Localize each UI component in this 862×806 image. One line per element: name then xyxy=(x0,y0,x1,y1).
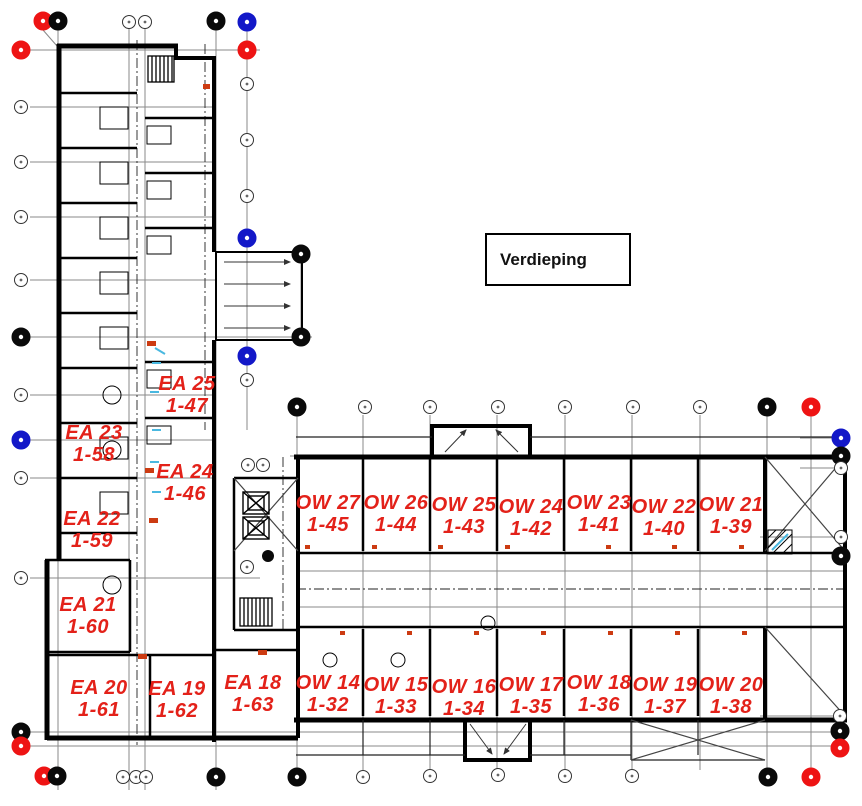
unit-name: EA 22 xyxy=(63,508,120,530)
unit-label-ea-21: EA 211-60 xyxy=(59,594,116,638)
unit-label-ow-21: OW 211-39 xyxy=(699,494,764,538)
grid-bubble-center xyxy=(839,715,842,718)
unit-number: 1-62 xyxy=(148,700,205,722)
unit-name: OW 27 xyxy=(296,492,361,514)
grid-bubble-center xyxy=(19,744,23,748)
grid-bubble-center xyxy=(362,776,365,779)
grid-bubble-center xyxy=(429,775,432,778)
grid-bubble-center xyxy=(19,48,23,52)
grid-bubble-center xyxy=(20,394,23,397)
unit-number: 1-32 xyxy=(296,694,361,716)
unit-number: 1-47 xyxy=(158,395,215,417)
grid-bubble-center xyxy=(295,775,299,779)
grid-bubble-center xyxy=(245,48,249,52)
unit-label-ow-17: OW 171-35 xyxy=(499,674,564,718)
grid-bubble-center xyxy=(19,335,23,339)
grid-bubble-center xyxy=(214,775,218,779)
unit-name: OW 20 xyxy=(699,674,764,696)
grid-bubble-center xyxy=(631,775,634,778)
unit-number: 1-38 xyxy=(699,696,764,718)
unit-number: 1-59 xyxy=(63,530,120,552)
grid-bubble-center xyxy=(214,19,218,23)
unit-name: EA 24 xyxy=(156,461,213,483)
unit-label-ea-19: EA 191-62 xyxy=(148,678,205,722)
grid-bubble-center xyxy=(246,566,249,569)
grid-bubble-center xyxy=(699,406,702,409)
grid-bubble-center xyxy=(497,774,500,777)
grid-bubble-center xyxy=(144,21,147,24)
grid-bubble-center xyxy=(20,216,23,219)
stair-top xyxy=(148,56,174,82)
grid-bubble-center xyxy=(840,536,843,539)
unit-number: 1-61 xyxy=(70,699,127,721)
grid-bubble-center xyxy=(809,775,813,779)
grid-bubble-center xyxy=(247,464,250,467)
unit-number: 1-33 xyxy=(364,696,429,718)
unit-name: OW 23 xyxy=(567,492,632,514)
grid-bubble-center xyxy=(809,405,813,409)
unit-name: OW 18 xyxy=(567,672,632,694)
unit-label-ow-20: OW 201-38 xyxy=(699,674,764,718)
grid-bubble-center xyxy=(20,106,23,109)
unit-number: 1-43 xyxy=(432,516,497,538)
unit-number: 1-41 xyxy=(567,514,632,536)
unit-name: EA 21 xyxy=(59,594,116,616)
unit-label-ow-25: OW 251-43 xyxy=(432,494,497,538)
unit-name: EA 23 xyxy=(65,422,122,444)
unit-number: 1-60 xyxy=(59,616,116,638)
grid-bubble-center xyxy=(55,774,59,778)
unit-label-ea-24: EA 241-46 xyxy=(156,461,213,505)
grid-bubble-center xyxy=(135,776,138,779)
grid-bubble-center xyxy=(246,139,249,142)
grid-bubble-center xyxy=(19,730,23,734)
grid-bubble-center xyxy=(364,406,367,409)
unit-label-ow-24: OW 241-42 xyxy=(499,496,564,540)
unit-name: OW 25 xyxy=(432,494,497,516)
unit-name: OW 21 xyxy=(699,494,764,516)
grid-bubble-center xyxy=(295,405,299,409)
grid-bubble-center xyxy=(128,21,131,24)
grid-bubble-center xyxy=(245,354,249,358)
unit-name: OW 22 xyxy=(632,496,697,518)
left-balcony-arrows xyxy=(224,262,290,328)
unit-label-ea-23: EA 231-58 xyxy=(65,422,122,466)
floor-plan-canvas: Verdieping EA 251-47EA 231-58EA 241-46EA… xyxy=(0,0,862,806)
left-balcony xyxy=(216,252,302,340)
title-box: Verdieping xyxy=(485,233,631,286)
grid-bubble-center xyxy=(262,464,265,467)
grid-bubble-center xyxy=(429,406,432,409)
grid-bubble-center xyxy=(246,83,249,86)
unit-name: EA 25 xyxy=(158,373,215,395)
grid-bubble-center xyxy=(766,775,770,779)
grid-bubble-center xyxy=(299,335,303,339)
unit-number: 1-40 xyxy=(632,518,697,540)
grid-bubble-center xyxy=(840,467,843,470)
stair-core xyxy=(240,598,272,626)
grid-bubble-center xyxy=(564,775,567,778)
unit-label-ow-23: OW 231-41 xyxy=(567,492,632,536)
grid-bubble-center xyxy=(299,252,303,256)
grid-bubble-center xyxy=(145,776,148,779)
unit-label-ow-27: OW 271-45 xyxy=(296,492,361,536)
grid-bubble-center xyxy=(245,236,249,240)
unit-number: 1-42 xyxy=(499,518,564,540)
unit-label-ow-26: OW 261-44 xyxy=(364,492,429,536)
unit-number: 1-44 xyxy=(364,514,429,536)
unit-number: 1-63 xyxy=(224,694,281,716)
unit-label-ea-25: EA 251-47 xyxy=(158,373,215,417)
grid-bubble-center xyxy=(122,776,125,779)
unit-name: OW 26 xyxy=(364,492,429,514)
unit-number: 1-39 xyxy=(699,516,764,538)
grid-bubble-center xyxy=(20,161,23,164)
unit-label-ow-14: OW 141-32 xyxy=(296,672,361,716)
unit-name: OW 19 xyxy=(633,674,698,696)
drawing-title: Verdieping xyxy=(500,250,587,270)
unit-label-ow-18: OW 181-36 xyxy=(567,672,632,716)
unit-name: OW 17 xyxy=(499,674,564,696)
unit-label-ea-22: EA 221-59 xyxy=(63,508,120,552)
unit-label-ow-19: OW 191-37 xyxy=(633,674,698,718)
grid-bubble-center xyxy=(632,406,635,409)
core-column-dot xyxy=(262,550,274,562)
grid-bubble-center xyxy=(42,774,46,778)
unit-label-ea-20: EA 201-61 xyxy=(70,677,127,721)
unit-name: OW 15 xyxy=(364,674,429,696)
grid-bubble-center xyxy=(838,729,842,733)
unit-name: EA 20 xyxy=(70,677,127,699)
grid-bubble-center xyxy=(20,477,23,480)
grid-bubble-center xyxy=(20,577,23,580)
unit-name: OW 16 xyxy=(432,676,497,698)
door-markers xyxy=(138,84,747,659)
grid-bubble-center xyxy=(245,20,249,24)
main-walls xyxy=(176,44,845,762)
unit-number: 1-45 xyxy=(296,514,361,536)
grid-bubble-center xyxy=(838,746,842,750)
grid-bubble-center xyxy=(246,379,249,382)
unit-label-ow-22: OW 221-40 xyxy=(632,496,697,540)
unit-name: OW 14 xyxy=(296,672,361,694)
unit-number: 1-58 xyxy=(65,444,122,466)
unit-number: 1-34 xyxy=(432,698,497,720)
unit-number: 1-37 xyxy=(633,696,698,718)
unit-label-ow-15: OW 151-33 xyxy=(364,674,429,718)
grid-bubble-center xyxy=(564,406,567,409)
grid-bubble-center xyxy=(41,19,45,23)
grid-bubble-center xyxy=(497,406,500,409)
grid-bubble-center xyxy=(839,454,843,458)
unit-label-ow-16: OW 161-34 xyxy=(432,676,497,720)
grid-bubble-center xyxy=(839,436,843,440)
grid-bubble-center xyxy=(19,438,23,442)
unit-number: 1-46 xyxy=(156,483,213,505)
unit-number: 1-35 xyxy=(499,696,564,718)
unit-label-ea-18: EA 181-63 xyxy=(224,672,281,716)
grid-bubble-center xyxy=(20,279,23,282)
unit-name: EA 18 xyxy=(224,672,281,694)
unit-name: OW 24 xyxy=(499,496,564,518)
grid-bubble-center xyxy=(246,195,249,198)
unit-number: 1-36 xyxy=(567,694,632,716)
unit-name: EA 19 xyxy=(148,678,205,700)
grid-bubble-center xyxy=(765,405,769,409)
grid-bubble-center xyxy=(839,554,843,558)
grid-bubble-center xyxy=(56,19,60,23)
